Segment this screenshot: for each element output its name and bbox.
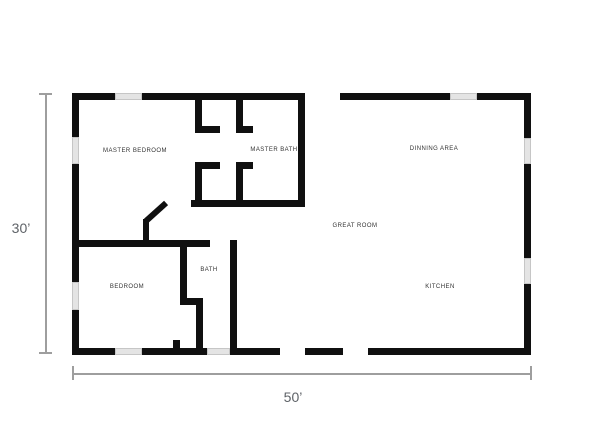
width-dimension-label: 50’ (284, 389, 303, 405)
floor-plan: MASTER BEDROOMMASTER BATHDINNING AREAGRE… (0, 0, 600, 440)
room-label-dinning-area: DINNING AREA (410, 146, 458, 152)
width-dimension-line (73, 373, 531, 375)
window-left-lower (72, 282, 79, 310)
window-right-upper (524, 138, 531, 164)
height-dimension-label: 30’ (12, 220, 31, 236)
door-swing-icon (144, 201, 168, 223)
window-right-lower (524, 258, 531, 284)
wall-shower-v (196, 305, 203, 348)
window-left-upper (72, 137, 79, 164)
height-dimension-cap-bottom (39, 352, 52, 354)
window-top-left (115, 93, 142, 100)
wall-bath-right-v (230, 240, 237, 355)
wall-bedroom-door-jamb (173, 340, 180, 355)
wall-closet-bottom-h (191, 200, 305, 207)
width-dimension-cap-left (72, 366, 74, 380)
wall-exterior-bottom-3 (368, 348, 531, 355)
wall-closet-upper-right-stub (236, 126, 253, 133)
window-top-right (450, 93, 477, 100)
wall-exterior-top-left (72, 93, 305, 100)
room-label-bath: BATH (200, 267, 217, 273)
width-dimension-cap-right (530, 366, 532, 380)
wall-bedroom-bath-divider-v (180, 240, 187, 305)
height-dimension-line (45, 94, 47, 353)
wall-exterior-right (524, 93, 531, 355)
wall-exterior-left (72, 93, 79, 355)
wall-exterior-bottom-2 (305, 348, 343, 355)
room-label-master-bath: MASTER BATH (250, 147, 297, 153)
room-label-bedroom: BEDROOM (110, 284, 144, 290)
room-label-master-bedroom: MASTER BEDROOM (103, 148, 167, 154)
wall-exterior-top-right (340, 93, 530, 100)
height-dimension-cap-top (39, 93, 52, 95)
wall-shower-stub-h (180, 298, 203, 305)
window-bottom-left (115, 348, 142, 355)
window-bottom-bath (207, 348, 230, 355)
wall-master-bath-right-v (298, 93, 305, 207)
room-label-great-room: GREAT ROOM (333, 223, 378, 229)
wall-closet-upper-left-stub (195, 126, 220, 133)
room-label-kitchen: KITCHEN (425, 284, 455, 290)
